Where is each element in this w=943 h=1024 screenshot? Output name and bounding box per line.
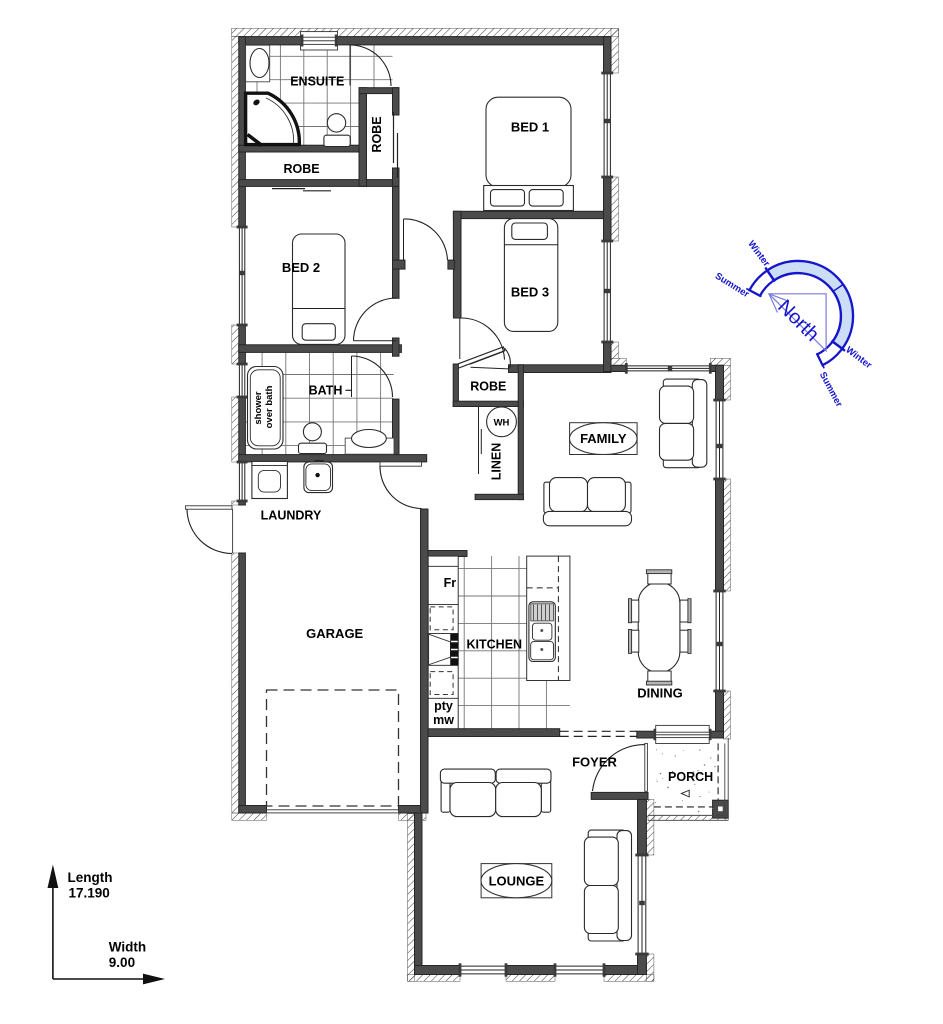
svg-text:17.190: 17.190 [69,886,110,901]
svg-text:BED 3: BED 3 [511,285,549,300]
svg-text:BED 1: BED 1 [511,120,549,135]
svg-text:WH: WH [494,418,510,429]
svg-text:Fr: Fr [444,576,457,590]
svg-text:ROBE: ROBE [370,116,384,152]
svg-text:ROBE: ROBE [470,380,506,394]
svg-text:ENSUITE: ENSUITE [290,74,344,88]
svg-text:shower: shower [253,391,264,425]
svg-text:LOUNGE: LOUNGE [489,873,545,888]
svg-text:pty: pty [434,699,453,713]
svg-text:LINEN: LINEN [489,443,503,481]
svg-text:ROBE: ROBE [283,162,319,176]
svg-text:DINING: DINING [637,686,683,701]
svg-text:LAUNDRY: LAUNDRY [261,509,322,523]
svg-text:FAMILY: FAMILY [580,431,627,446]
svg-text:PORCH: PORCH [668,770,713,784]
svg-text:mw: mw [433,713,454,727]
svg-text:Length: Length [68,870,113,885]
svg-text:BED 2: BED 2 [282,260,320,275]
svg-text:GARAGE: GARAGE [306,626,363,641]
svg-text:9.00: 9.00 [109,955,135,970]
svg-text:over bath: over bath [264,385,275,428]
svg-text:Width: Width [109,940,146,955]
svg-text:FOYER: FOYER [572,755,617,770]
svg-text:KITCHEN: KITCHEN [467,638,523,652]
svg-text:BATH: BATH [309,384,343,398]
